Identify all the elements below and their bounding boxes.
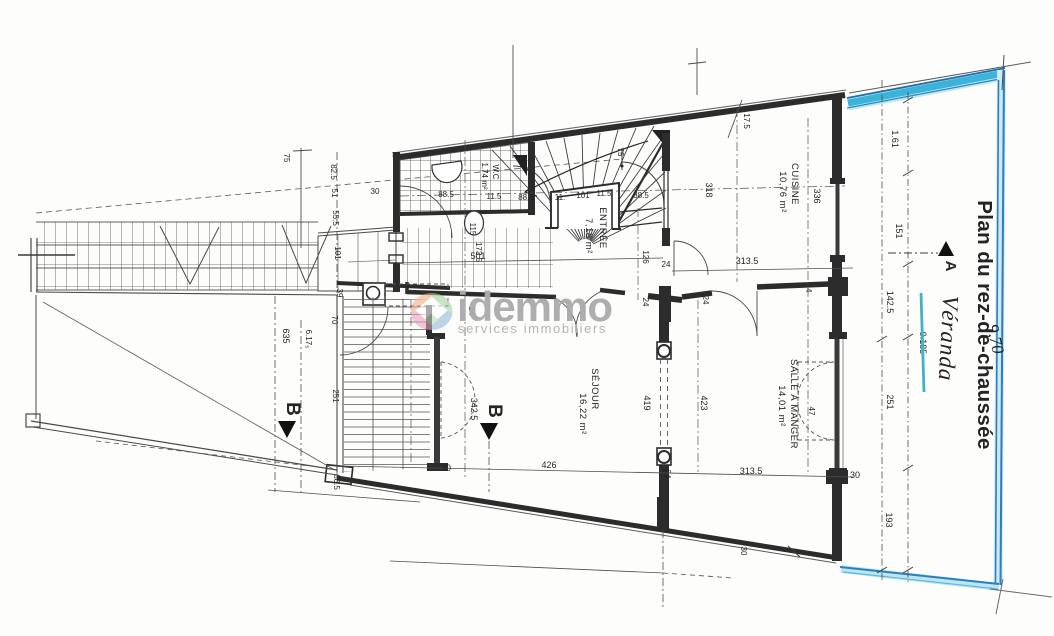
svg-text:24: 24 xyxy=(661,469,670,478)
svg-text:B: B xyxy=(282,402,303,416)
svg-text:635: 635 xyxy=(281,328,291,343)
svg-text:51: 51 xyxy=(330,189,339,198)
svg-text:services immobiliers: services immobiliers xyxy=(458,321,607,336)
svg-text:313.5: 313.5 xyxy=(736,256,759,266)
svg-text:193: 193 xyxy=(884,512,894,527)
svg-text:126: 126 xyxy=(641,250,650,264)
svg-text:1.74 m²: 1.74 m² xyxy=(480,162,489,189)
svg-text:ENTRÉE: ENTRÉE xyxy=(597,207,608,249)
svg-text:251: 251 xyxy=(885,394,895,409)
svg-text:7,18 m²: 7,18 m² xyxy=(583,218,594,254)
svg-text:SÉJOUR: SÉJOUR xyxy=(589,368,600,410)
svg-text:24: 24 xyxy=(662,260,671,269)
svg-text:B: B xyxy=(484,404,505,418)
svg-text:142.5: 142.5 xyxy=(885,291,895,314)
svg-text:Véranda: Véranda xyxy=(934,295,963,382)
svg-text:88.5: 88.5 xyxy=(518,193,534,202)
svg-text:336: 336 xyxy=(812,188,822,203)
svg-text:68.5: 68.5 xyxy=(332,474,341,490)
svg-text:SALLE À MANGER: SALLE À MANGER xyxy=(788,359,799,449)
svg-text:251: 251 xyxy=(331,389,340,403)
svg-text:501: 501 xyxy=(470,251,485,261)
svg-text:419: 419 xyxy=(642,395,652,410)
svg-text:17.5: 17.5 xyxy=(742,113,751,129)
svg-text:82.5: 82.5 xyxy=(329,164,338,180)
svg-text:318: 318 xyxy=(704,182,714,197)
svg-text:313.5: 313.5 xyxy=(740,466,763,476)
svg-text:30: 30 xyxy=(850,470,860,480)
svg-text:88.5: 88.5 xyxy=(633,191,649,200)
svg-text:151: 151 xyxy=(894,223,904,238)
svg-text:30: 30 xyxy=(371,187,380,196)
svg-text:101: 101 xyxy=(576,191,590,200)
svg-text:423: 423 xyxy=(699,395,709,410)
svg-text:11.5: 11.5 xyxy=(487,192,503,201)
svg-text:55.5: 55.5 xyxy=(331,210,340,226)
svg-text:75: 75 xyxy=(282,154,291,163)
svg-text:115: 115 xyxy=(468,223,477,236)
svg-text:342.5: 342.5 xyxy=(469,398,479,421)
svg-text:1.61: 1.61 xyxy=(890,130,900,148)
svg-text:6.17₅: 6.17₅ xyxy=(304,330,313,349)
svg-text:101: 101 xyxy=(333,246,342,260)
svg-text:16,22 m²: 16,22 m² xyxy=(577,393,588,435)
svg-text:24: 24 xyxy=(641,298,650,307)
svg-text:10,76 m²: 10,76 m² xyxy=(777,171,788,213)
svg-text:30: 30 xyxy=(739,547,748,556)
svg-text:70: 70 xyxy=(330,316,339,325)
svg-text:W.C: W.C xyxy=(491,164,500,179)
svg-text:11.5: 11.5 xyxy=(597,189,613,198)
svg-text:30: 30 xyxy=(441,463,451,473)
svg-text:14,01 m²: 14,01 m² xyxy=(776,385,787,427)
svg-text:11.: 11. xyxy=(555,193,566,202)
svg-text:426: 426 xyxy=(541,460,556,470)
svg-text:A: A xyxy=(942,261,959,272)
svg-text:CUISINE: CUISINE xyxy=(789,163,800,205)
